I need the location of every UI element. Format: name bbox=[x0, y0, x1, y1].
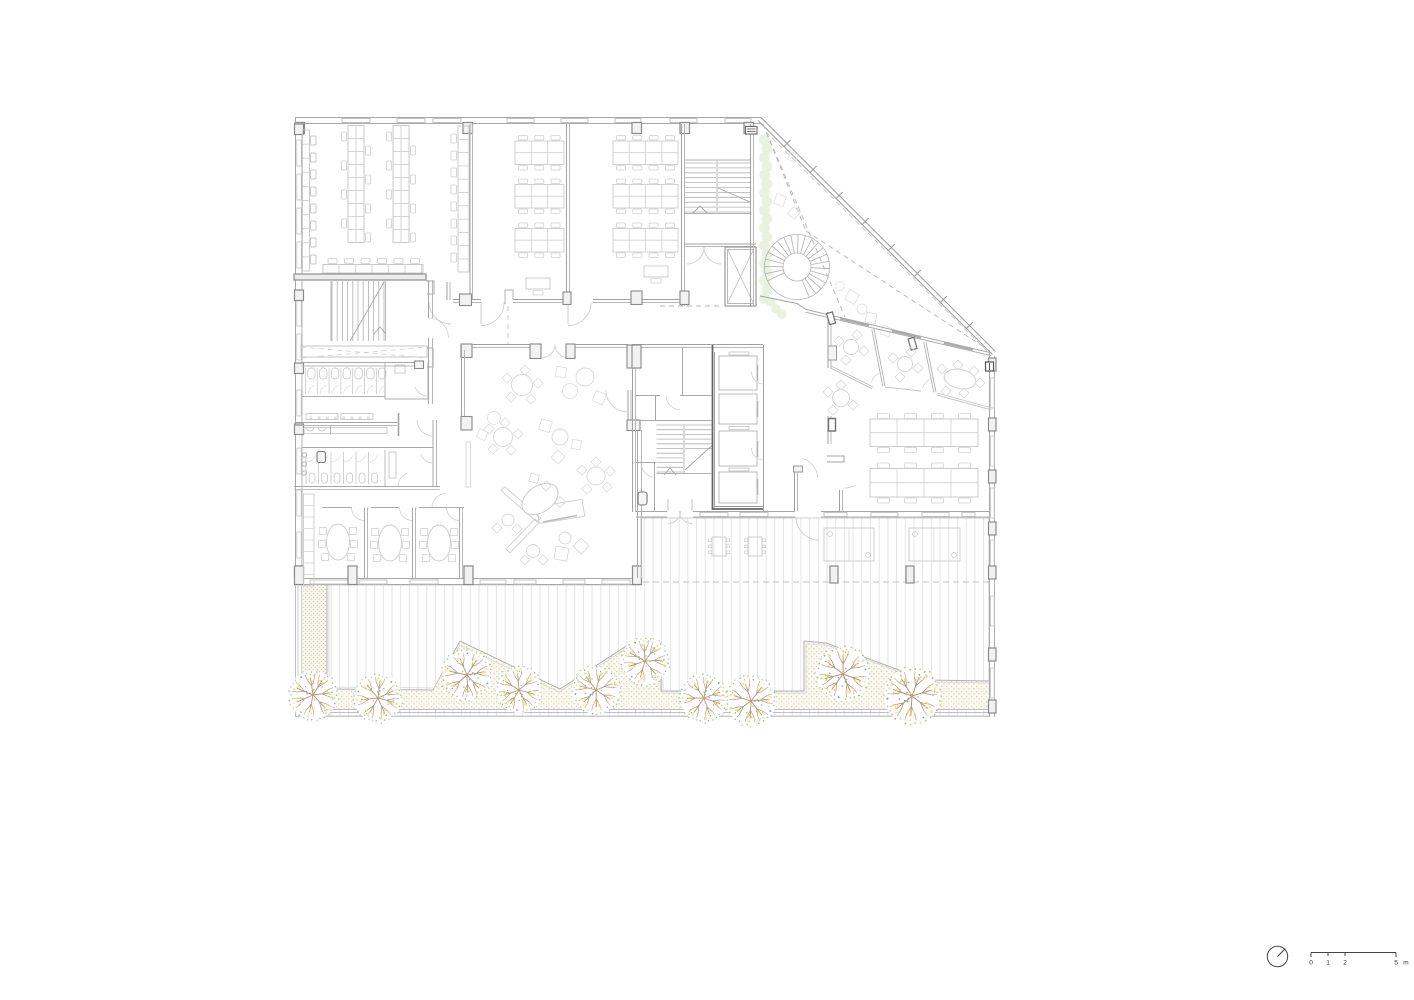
svg-text:0: 0 bbox=[1309, 960, 1313, 967]
svg-text:m: m bbox=[1403, 960, 1408, 967]
svg-text:5: 5 bbox=[1394, 960, 1398, 967]
svg-text:2: 2 bbox=[1343, 960, 1347, 967]
svg-text:1: 1 bbox=[1326, 960, 1330, 967]
